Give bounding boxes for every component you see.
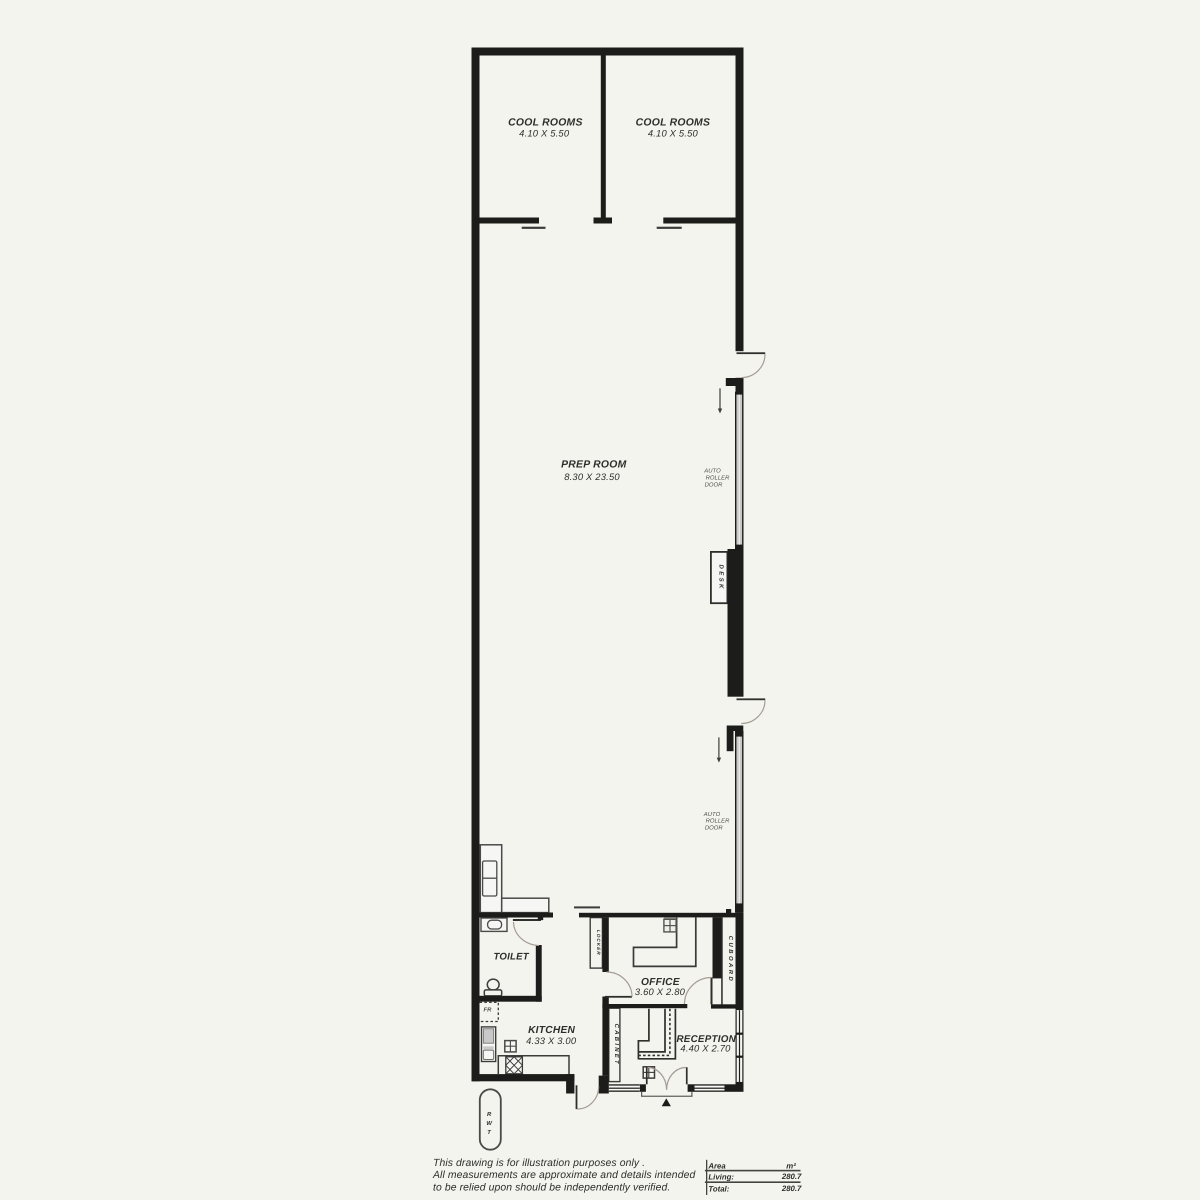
svg-text:W: W [486, 1120, 494, 1127]
svg-text:8.30 X 23.50: 8.30 X 23.50 [564, 471, 620, 482]
svg-text:3.60 X 2.80: 3.60 X 2.80 [635, 986, 686, 997]
svg-text:4.33 X 3.00: 4.33 X 3.00 [526, 1035, 577, 1046]
svg-text:CABINET: CABINET [613, 1024, 620, 1066]
svg-text:280.7: 280.7 [781, 1172, 802, 1181]
svg-text:AUTO: AUTO [703, 811, 721, 818]
svg-text:to be relied upon should be in: to be relied upon should be independentl… [433, 1182, 670, 1193]
svg-text:Area: Area [707, 1161, 726, 1170]
svg-text:DOOR: DOOR [705, 481, 724, 488]
svg-text:T: T [487, 1129, 493, 1136]
svg-text:4.10 X 5.50: 4.10 X 5.50 [519, 128, 570, 139]
svg-text:This drawing is for illustrati: This drawing is for illustration purpose… [433, 1158, 645, 1169]
svg-text:280.7: 280.7 [781, 1184, 802, 1193]
svg-text:LOCKER: LOCKER [596, 930, 601, 956]
svg-text:All measurements are approxima: All measurements are approximate and det… [432, 1170, 696, 1181]
svg-text:FR: FR [484, 1006, 493, 1013]
svg-text:ROLLER: ROLLER [706, 474, 731, 481]
svg-text:DESK: DESK [717, 564, 724, 590]
svg-text:4.10 X 5.50: 4.10 X 5.50 [648, 128, 699, 139]
svg-text:R: R [487, 1111, 493, 1118]
svg-text:4.40 X 2.70: 4.40 X 2.70 [680, 1043, 731, 1054]
svg-text:CUBOARD: CUBOARD [727, 936, 734, 984]
svg-text:PREP ROOM: PREP ROOM [561, 460, 626, 471]
svg-text:ROLLER: ROLLER [706, 818, 731, 825]
svg-text:Living:: Living: [708, 1173, 734, 1182]
svg-text:m²: m² [786, 1161, 796, 1170]
svg-text:Total:: Total: [708, 1184, 729, 1193]
svg-text:AUTO: AUTO [703, 467, 721, 474]
svg-text:DOOR: DOOR [705, 824, 724, 831]
svg-text:TOILET: TOILET [493, 951, 529, 962]
